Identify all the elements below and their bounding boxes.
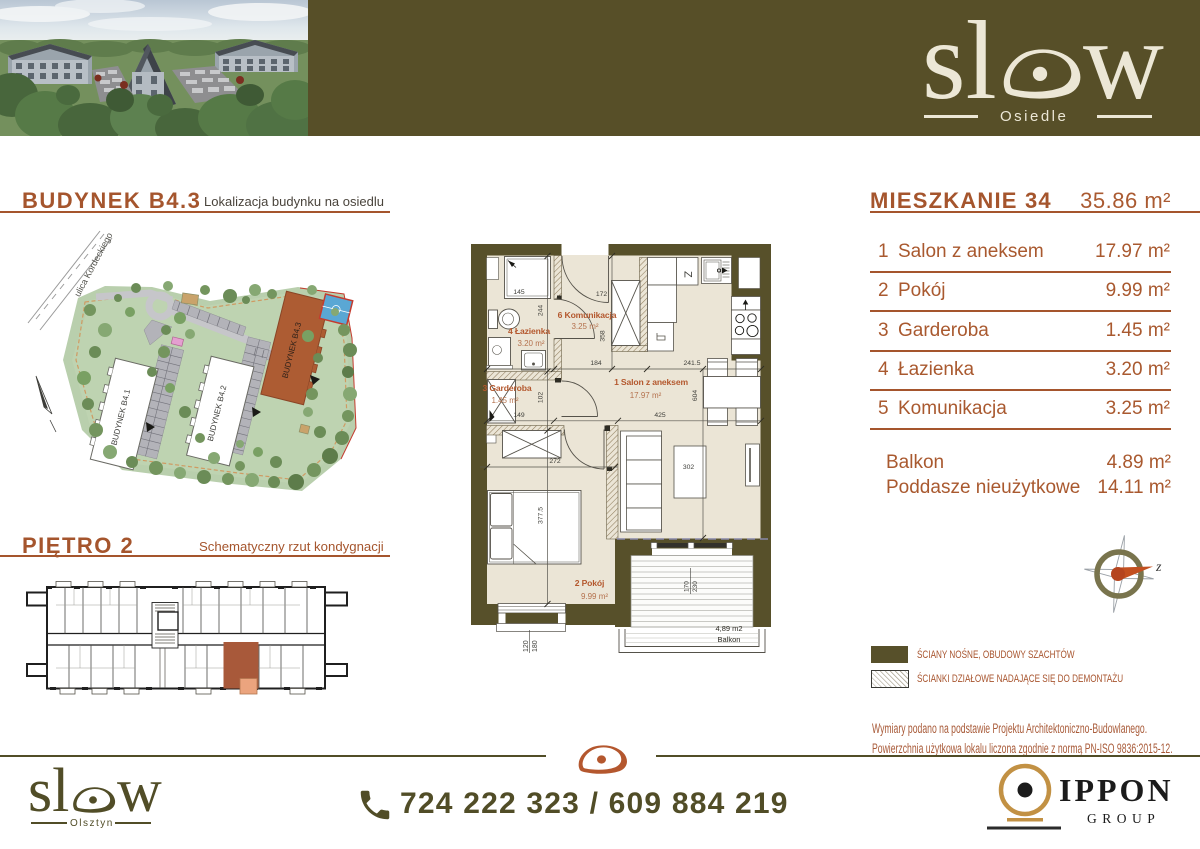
svg-text:230: 230 xyxy=(692,581,699,592)
svg-text:9.99 m²: 9.99 m² xyxy=(581,592,608,601)
svg-text:3.25 m²: 3.25 m² xyxy=(571,322,598,331)
svg-text:4,89 m2: 4,89 m2 xyxy=(715,624,742,633)
svg-text:17.97 m²: 17.97 m² xyxy=(630,391,662,400)
svg-text:302: 302 xyxy=(683,464,695,471)
svg-text:GROUP: GROUP xyxy=(1087,811,1160,826)
svg-text:1.45 m²: 1.45 m² xyxy=(491,396,518,405)
svg-text:IPPON: IPPON xyxy=(1059,772,1174,808)
svg-text:120: 120 xyxy=(523,640,530,652)
svg-text:272: 272 xyxy=(549,458,561,465)
svg-text:604: 604 xyxy=(692,390,699,402)
svg-text:170: 170 xyxy=(684,581,691,592)
svg-text:Balkon: Balkon xyxy=(718,635,741,644)
svg-text:149: 149 xyxy=(513,412,525,419)
svg-text:102: 102 xyxy=(538,392,545,404)
svg-text:4 Łazienka: 4 Łazienka xyxy=(508,326,550,336)
svg-text:2 Pokój: 2 Pokój xyxy=(575,578,605,588)
svg-text:241.5: 241.5 xyxy=(683,360,700,367)
svg-text:3.20 m²: 3.20 m² xyxy=(517,339,544,348)
svg-text:172: 172 xyxy=(596,291,608,298)
svg-text:377.5: 377.5 xyxy=(538,507,545,524)
svg-text:6 Komunikacja: 6 Komunikacja xyxy=(558,310,617,320)
svg-text:Z: Z xyxy=(682,271,694,278)
svg-text:358: 358 xyxy=(600,330,607,342)
svg-text:3 Garderoba: 3 Garderoba xyxy=(483,383,532,393)
svg-text:1 Salon z aneksem: 1 Salon z aneksem xyxy=(614,377,688,387)
svg-text:145: 145 xyxy=(513,289,525,296)
svg-text:184: 184 xyxy=(590,360,602,367)
svg-text:z: z xyxy=(1155,560,1162,575)
svg-text:425: 425 xyxy=(654,412,666,419)
svg-text:244: 244 xyxy=(538,305,545,317)
svg-text:180: 180 xyxy=(532,640,539,652)
